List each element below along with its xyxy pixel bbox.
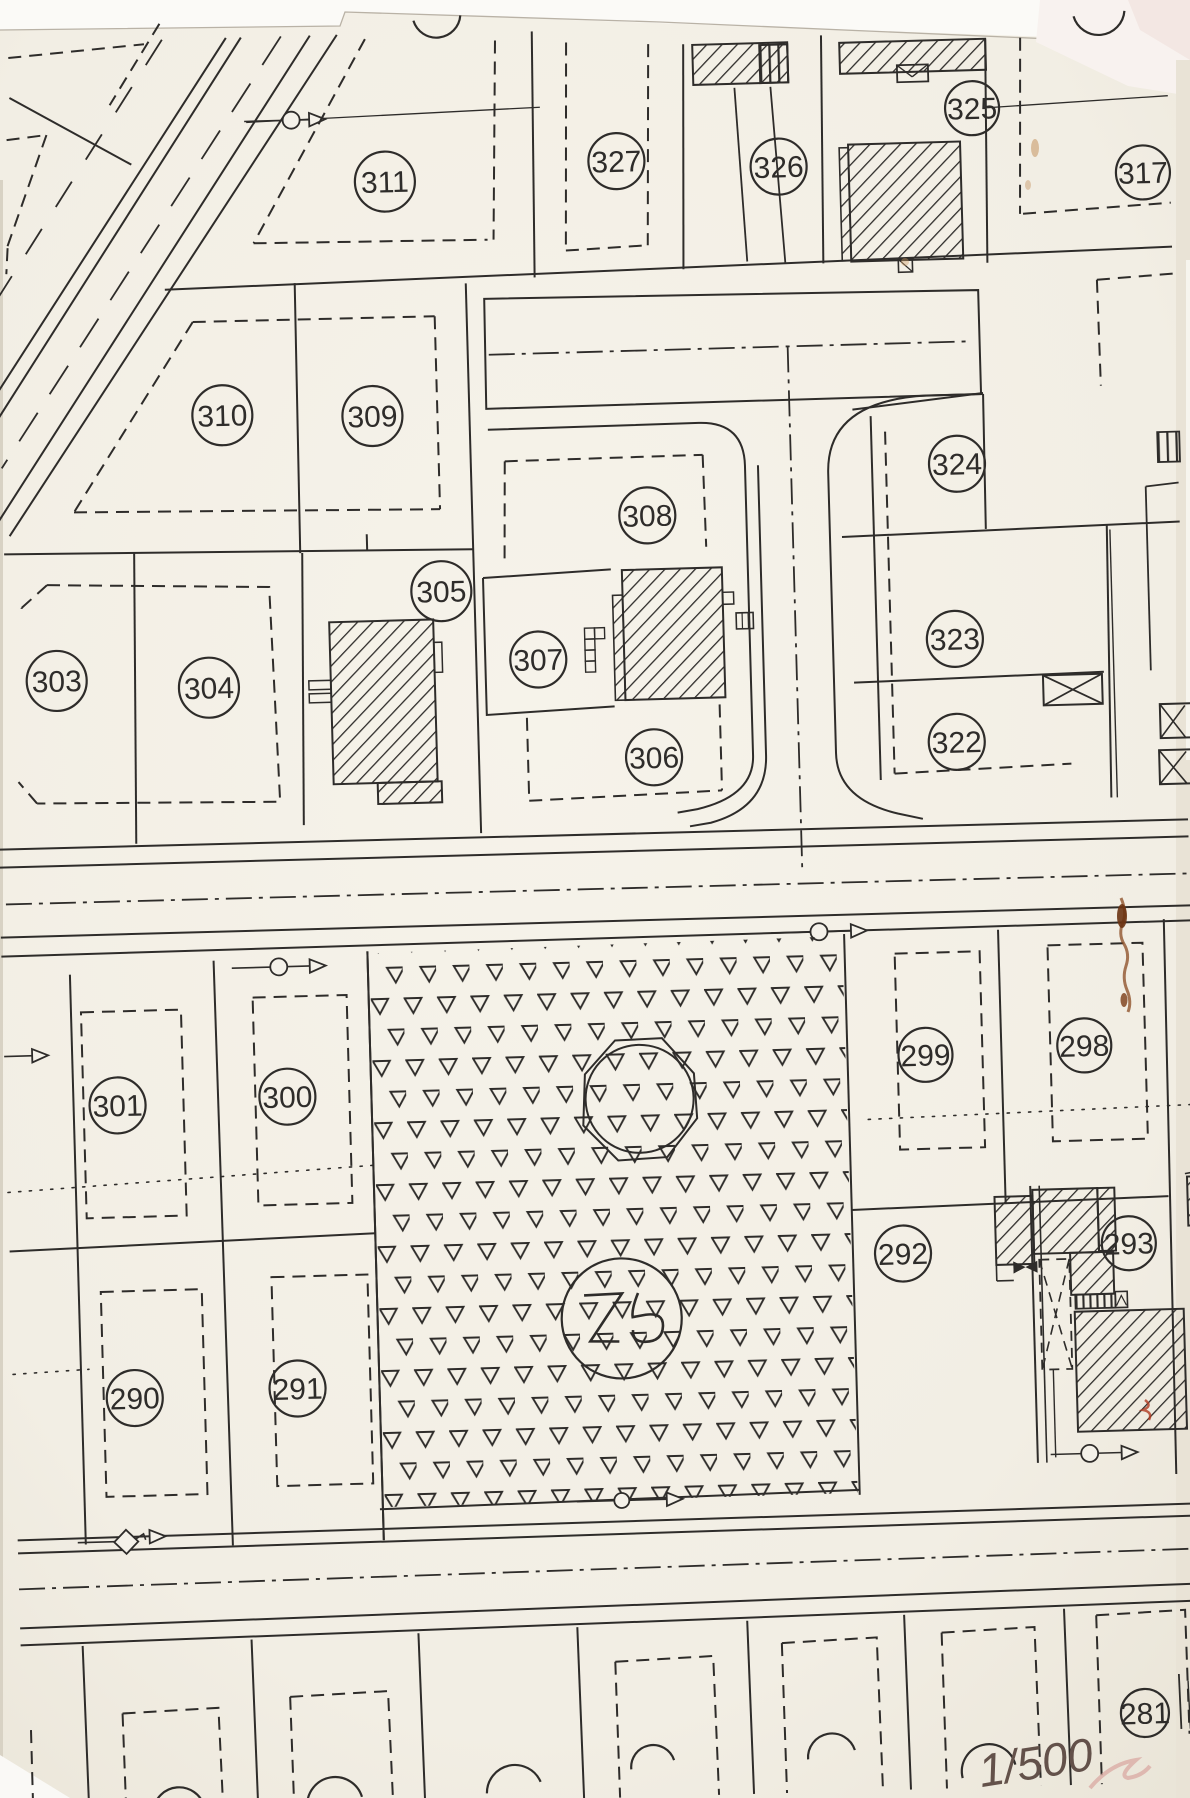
svg-text:309: 309 <box>347 400 398 434</box>
svg-text:326: 326 <box>753 151 804 185</box>
svg-text:300: 300 <box>262 1081 313 1115</box>
svg-text:290: 290 <box>109 1382 160 1416</box>
svg-text:317: 317 <box>1117 157 1168 191</box>
svg-text:303: 303 <box>31 665 82 699</box>
svg-text:310: 310 <box>197 399 248 433</box>
svg-text:301: 301 <box>92 1090 143 1124</box>
svg-text:299: 299 <box>900 1039 951 1073</box>
svg-text:281: 281 <box>1119 1697 1170 1731</box>
svg-text:292: 292 <box>878 1238 929 1272</box>
svg-text:311: 311 <box>361 166 410 200</box>
svg-text:327: 327 <box>591 145 642 179</box>
svg-text:291: 291 <box>272 1373 323 1407</box>
svg-text:304: 304 <box>184 672 235 706</box>
svg-text:305: 305 <box>416 575 467 609</box>
svg-text:307: 307 <box>513 644 564 678</box>
svg-text:324: 324 <box>932 448 983 482</box>
svg-text:322: 322 <box>931 726 982 760</box>
svg-text:325: 325 <box>947 92 998 126</box>
svg-text:298: 298 <box>1059 1030 1110 1064</box>
svg-text:308: 308 <box>622 499 673 533</box>
svg-text:323: 323 <box>929 623 980 657</box>
svg-text:306: 306 <box>629 741 680 775</box>
